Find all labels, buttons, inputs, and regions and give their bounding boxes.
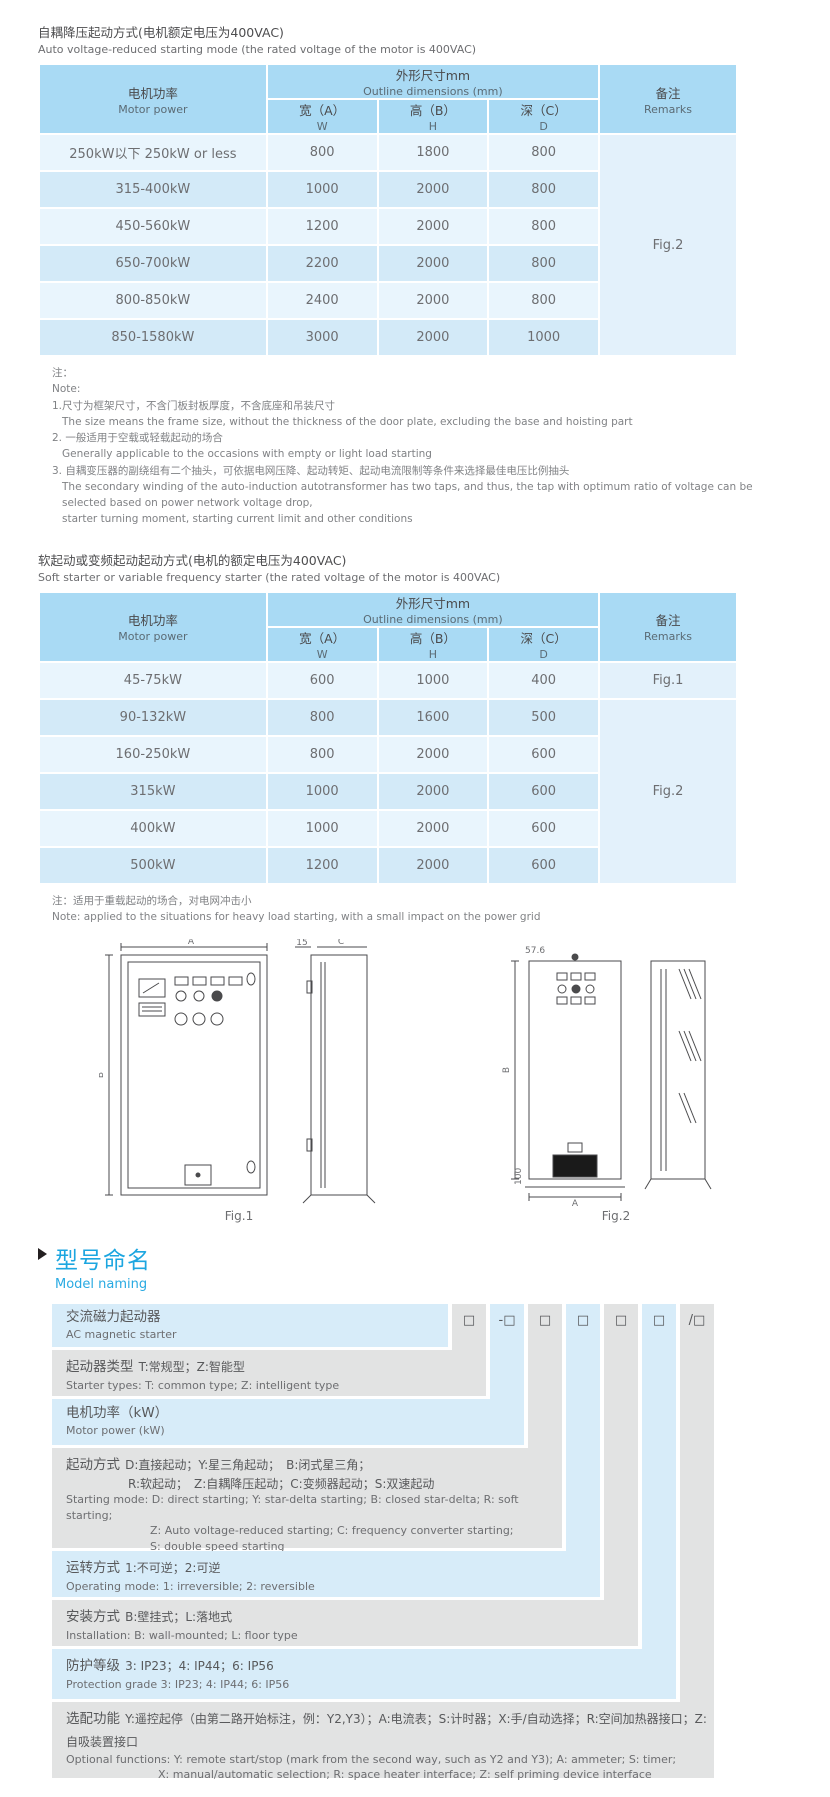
- cabinet-drawing-fig2: 57.6 B 100 A: [501, 939, 731, 1207]
- cell-d: 1000: [488, 319, 599, 356]
- code-box-2: -□: [490, 1313, 524, 1328]
- cell-power: 450-560kW: [39, 208, 267, 245]
- code-box-6: □: [642, 1313, 676, 1328]
- cell-w: 1000: [267, 171, 378, 208]
- cell-d: 400: [488, 662, 599, 699]
- cell-d: 800: [488, 245, 599, 282]
- table-row: 90-132kW 800 1600 500 Fig.2: [39, 699, 737, 736]
- cell-d: 800: [488, 282, 599, 319]
- cell-d: 800: [488, 134, 599, 171]
- section-title-zh: 型号命名: [55, 1241, 151, 1275]
- code-box-5: □: [604, 1313, 638, 1328]
- cell-remark-fig1: Fig.1: [599, 662, 737, 699]
- cell-h: 2000: [378, 171, 489, 208]
- col-header-motor-power: 电机功率 Motor power: [39, 64, 267, 134]
- model-row-en: Optional functions: Y: remote start/stop…: [66, 1752, 714, 1767]
- note-line: Generally applicable to the occasions wi…: [52, 446, 792, 462]
- fig2-dim-100: 100: [514, 1168, 524, 1185]
- model-naming-diagram: □ -□ □ □ □ □ /□ QC91 交流磁力起动器 AC magnetic…: [52, 1304, 732, 1778]
- cabinet-drawing-fig1: A B 15 C: [99, 939, 379, 1207]
- cell-power: 850-1580kW: [39, 319, 267, 356]
- fig1-dim-c: C: [338, 939, 344, 947]
- soft-start-table: 电机功率 Motor power 外形尺寸mm Outline dimensio…: [38, 591, 738, 885]
- note-line: 3. 自耦变压器的副绕组有二个抽头，可依据电网压降、起动转矩、起动电流限制等条件…: [52, 463, 792, 479]
- code-column-4: [566, 1304, 600, 1551]
- cell-power: 160-250kW: [39, 736, 267, 773]
- section-title-en: Model naming: [55, 1277, 151, 1292]
- model-row-en: Starting mode: D: direct starting; Y: st…: [66, 1492, 562, 1523]
- cell-h: 2000: [378, 319, 489, 356]
- model-row-label: 电机功率（kW）: [66, 1404, 524, 1423]
- cell-power: 650-700kW: [39, 245, 267, 282]
- note-block-1: 注： Note: 1.尺寸为框架尺寸，不含门板封板厚度，不含底座和吊装尺寸 Th…: [52, 365, 792, 528]
- code-box-4: □: [566, 1313, 600, 1328]
- cell-d: 500: [488, 699, 599, 736]
- code-box-7: /□: [680, 1313, 714, 1328]
- figures-row: A B 15 C Fig.1: [38, 939, 792, 1231]
- col-header-depth: 深（C）D: [488, 99, 599, 134]
- model-row-optional-functions: 选配功能 Y:遥控起停（由第二路开始标注，例：Y2,Y3）；A:电流表；S:计时…: [52, 1702, 714, 1778]
- cell-h: 2000: [378, 810, 489, 847]
- fig1-dim-b: B: [99, 1072, 106, 1078]
- model-naming-header: 型号命名 Model naming: [38, 1241, 792, 1292]
- table2-title-zh: 软起动或变频起动起动方式(电机的额定电压为400VAC): [38, 550, 792, 569]
- note-line: The size means the frame size, without t…: [52, 414, 792, 430]
- table-row: 250kW以下 250kW or less 800 1800 800 Fig.2: [39, 134, 737, 171]
- code-box-1: □: [452, 1313, 486, 1328]
- auto-voltage-table: 电机功率 Motor power 外形尺寸mm Outline dimensio…: [38, 63, 738, 357]
- cell-w: 1000: [267, 773, 378, 810]
- cell-h: 2000: [378, 245, 489, 282]
- col-header-height: 高（B）H: [378, 627, 489, 662]
- model-row-en: AC magnetic starter: [66, 1327, 448, 1342]
- fig2-dim-a: A: [572, 1199, 579, 1207]
- cell-h: 2000: [378, 847, 489, 884]
- fig1-dim-a: A: [188, 939, 195, 947]
- col-header-remarks: 备注 Remarks: [599, 592, 737, 662]
- figure-1: A B 15 C Fig.1: [99, 939, 379, 1231]
- cell-remark-fig2: Fig.2: [599, 134, 737, 356]
- cell-d: 600: [488, 736, 599, 773]
- fig2-dim-top: 57.6: [525, 946, 545, 956]
- cell-h: 1600: [378, 699, 489, 736]
- cell-remark-fig2: Fig.2: [599, 699, 737, 884]
- model-row-en: Z: Auto voltage-reduced starting; C: fre…: [66, 1523, 562, 1538]
- model-row-en: Installation: B: wall-mounted; L: floor …: [66, 1628, 638, 1643]
- cell-h: 2000: [378, 208, 489, 245]
- model-row-en: Operating mode: 1: irreversible; 2: reve…: [66, 1579, 600, 1594]
- code-column-7: [680, 1304, 714, 1702]
- note-line: 1.尺寸为框架尺寸，不含门板封板厚度，不含底座和吊装尺寸: [52, 398, 792, 414]
- cell-d: 600: [488, 773, 599, 810]
- col-header-width: 宽（A）W: [267, 99, 378, 134]
- cell-w: 1200: [267, 847, 378, 884]
- col-header-height: 高（B）H: [378, 99, 489, 134]
- cell-w: 3000: [267, 319, 378, 356]
- model-row-motor-power: 电机功率（kW） Motor power (kW): [52, 1399, 524, 1445]
- code-column-5: [604, 1304, 638, 1600]
- cell-power: 90-132kW: [39, 699, 267, 736]
- cell-h: 2000: [378, 736, 489, 773]
- cell-w: 800: [267, 699, 378, 736]
- cell-w: 1200: [267, 208, 378, 245]
- cell-d: 800: [488, 208, 599, 245]
- model-row-installation: 安装方式 B:壁挂式；L:落地式 Installation: B: wall-m…: [52, 1600, 638, 1646]
- fig1-label: Fig.1: [225, 1209, 253, 1223]
- model-row-operating-mode: 运转方式 1:不可逆；2:可逆 Operating mode: 1: irrev…: [52, 1551, 600, 1597]
- cell-w: 2200: [267, 245, 378, 282]
- note-line: 注：: [52, 365, 792, 381]
- cell-w: 800: [267, 736, 378, 773]
- fig2-label: Fig.2: [602, 1209, 630, 1223]
- code-column-6: [642, 1304, 676, 1649]
- model-row-en: Protection grade 3: IP23; 4: IP44; 6: IP…: [66, 1677, 676, 1692]
- model-row-en: X: manual/automatic selection; R: space …: [66, 1767, 714, 1782]
- cell-h: 2000: [378, 773, 489, 810]
- cell-d: 600: [488, 810, 599, 847]
- cell-h: 1800: [378, 134, 489, 171]
- cell-w: 2400: [267, 282, 378, 319]
- note-block-2: 注：适用于重载起动的场合，对电网冲击小 Note: applied to the…: [52, 893, 792, 926]
- model-row-starter-type: 起动器类型 T:常规型；Z:智能型 Starter types: T: comm…: [52, 1350, 486, 1396]
- section-arrow-icon: [38, 1248, 47, 1260]
- cell-power: 500kW: [39, 847, 267, 884]
- model-row-product: 交流磁力起动器 AC magnetic starter: [52, 1304, 448, 1347]
- model-row-starting-mode: 起动方式 D:直接起动；Y:星三角起动； B:闭式星三角； R:软起动； Z:自…: [52, 1448, 562, 1548]
- cell-power: 45-75kW: [39, 662, 267, 699]
- cell-power: 400kW: [39, 810, 267, 847]
- col-header-depth: 深（C）D: [488, 627, 599, 662]
- note-line: 2. 一般适用于空载或轻载起动的场合: [52, 430, 792, 446]
- cell-power: 250kW以下 250kW or less: [39, 134, 267, 171]
- note-line: starter turning moment, starting current…: [52, 511, 792, 527]
- table2-title-en: Soft starter or variable frequency start…: [38, 571, 792, 584]
- note-line: 注：适用于重载起动的场合，对电网冲击小: [52, 893, 792, 909]
- cell-w: 1000: [267, 810, 378, 847]
- note-line: The secondary winding of the auto-induct…: [52, 479, 792, 512]
- model-row-desc: R:软起动； Z:自耦降压起动；C:变频器起动；S:双速起动: [66, 1476, 562, 1493]
- table1-title-en: Auto voltage-reduced starting mode (the …: [38, 43, 792, 56]
- cell-power: 315kW: [39, 773, 267, 810]
- fig1-dim-15: 15: [296, 939, 307, 948]
- col-header-width: 宽（A）W: [267, 627, 378, 662]
- cell-h: 1000: [378, 662, 489, 699]
- cell-d: 800: [488, 171, 599, 208]
- cell-d: 600: [488, 847, 599, 884]
- cell-power: 315-400kW: [39, 171, 267, 208]
- code-box-3: □: [528, 1313, 562, 1328]
- cell-h: 2000: [378, 282, 489, 319]
- fig2-dim-b: B: [502, 1067, 512, 1073]
- cell-w: 600: [267, 662, 378, 699]
- table1-title-zh: 自耦降压起动方式(电机额定电压为400VAC): [38, 22, 792, 41]
- catalog-page: 自耦降压起动方式(电机额定电压为400VAC) Auto voltage-red…: [0, 0, 830, 1797]
- model-row-en: Starter types: T: common type; Z: intell…: [66, 1378, 486, 1393]
- model-row-protection-grade: 防护等级 3: IP23；4: IP44；6: IP56 Protection …: [52, 1649, 676, 1699]
- model-row-en: Motor power (kW): [66, 1423, 524, 1438]
- col-header-outline: 外形尺寸mm Outline dimensions (mm): [267, 64, 599, 99]
- cell-w: 800: [267, 134, 378, 171]
- table-row: 45-75kW 600 1000 400 Fig.1: [39, 662, 737, 699]
- col-header-motor-power: 电机功率 Motor power: [39, 592, 267, 662]
- col-header-remarks: 备注 Remarks: [599, 64, 737, 134]
- note-line: Note: applied to the situations for heav…: [52, 909, 792, 925]
- col-header-outline: 外形尺寸mm Outline dimensions (mm): [267, 592, 599, 627]
- model-row-label: 交流磁力起动器: [66, 1308, 448, 1327]
- cell-power: 800-850kW: [39, 282, 267, 319]
- note-line: Note:: [52, 381, 792, 397]
- figure-2: 57.6 B 100 A Fig.2: [501, 939, 731, 1231]
